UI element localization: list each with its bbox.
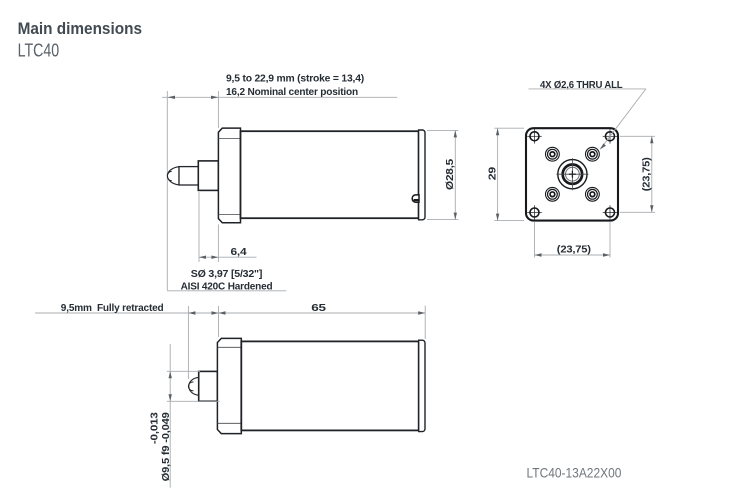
svg-text:SØ 3,97 [5/32"]: SØ 3,97 [5/32"] (191, 268, 262, 280)
svg-text:16,2 Nominal center position: 16,2 Nominal center position (226, 86, 358, 98)
svg-text:-0,013: -0,013 (148, 412, 160, 444)
svg-text:65: 65 (311, 302, 326, 314)
svg-text:9,5mm Fully retracted: 9,5mm Fully retracted (61, 302, 164, 314)
svg-text:Ø28,5: Ø28,5 (444, 159, 456, 190)
svg-text:(23,75): (23,75) (557, 244, 591, 256)
svg-text:Main dimensions: Main dimensions (18, 19, 142, 38)
svg-text:LTC40: LTC40 (18, 39, 60, 60)
svg-text:LTC40-13A22X00: LTC40-13A22X00 (527, 465, 622, 481)
svg-text:29: 29 (486, 167, 498, 181)
svg-text:6,4: 6,4 (231, 246, 247, 258)
svg-text:Ø9,5 f9 -0,049: Ø9,5 f9 -0,049 (160, 412, 172, 481)
svg-text:(23,75): (23,75) (640, 157, 652, 191)
svg-text:9,5 to 22,9 mm (stroke = 13,4): 9,5 to 22,9 mm (stroke = 13,4) (226, 72, 364, 84)
